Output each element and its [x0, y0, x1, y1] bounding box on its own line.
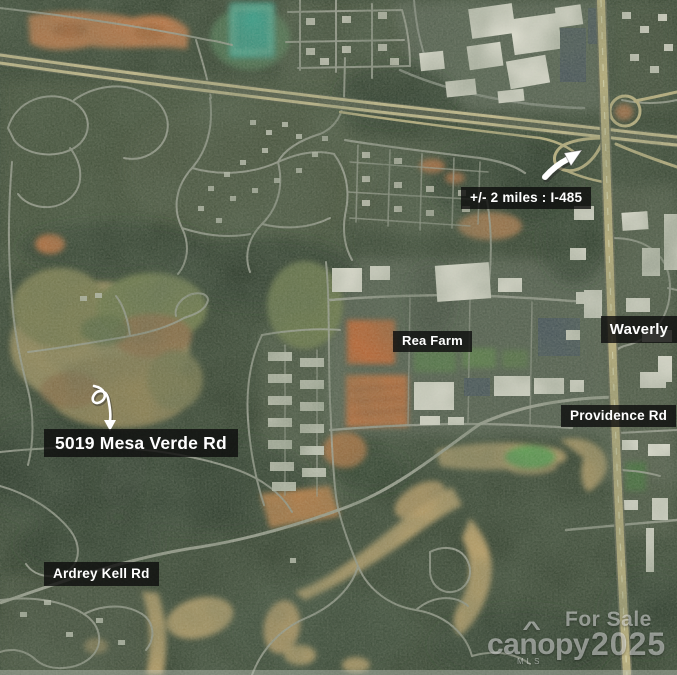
- satellite-map-photo: +/- 2 miles : I-485 Rea Farm Waverly Pro…: [0, 0, 677, 675]
- label-rea-farm: Rea Farm: [393, 331, 472, 352]
- label-providence-rd: Providence Rd: [561, 405, 676, 427]
- label-ardrey-kell-rd: Ardrey Kell Rd: [44, 562, 159, 586]
- photo-edge: [0, 670, 677, 675]
- label-property-address: 5019 Mesa Verde Rd: [44, 429, 238, 457]
- label-waverly: Waverly: [601, 316, 677, 343]
- label-i485-distance: +/- 2 miles : I-485: [461, 187, 591, 209]
